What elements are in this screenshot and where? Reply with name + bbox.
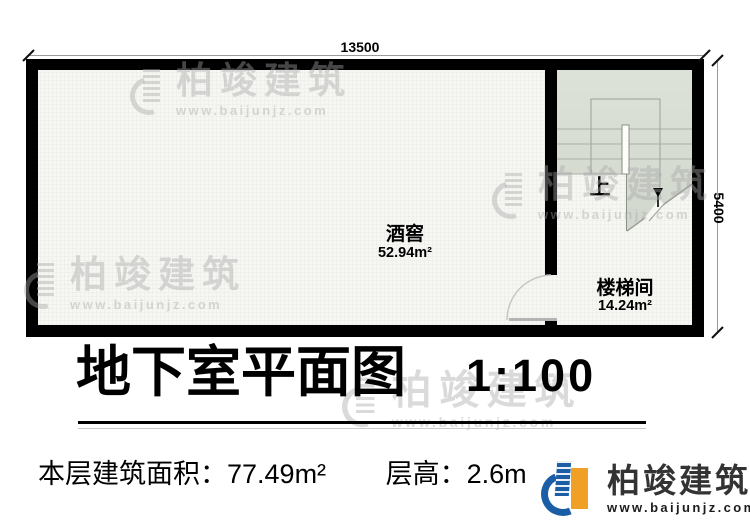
floorplan-sheet: 13500 5400 酒窖 52.94m² 楼梯间 14.24m² 上 柏竣建筑… (0, 0, 750, 530)
title-underline-thin (78, 428, 646, 429)
stair-center-rail (622, 125, 629, 174)
company-name: 柏竣建筑 (607, 464, 750, 497)
drawing-title-row: 地下室平面图 1:100 (76, 338, 596, 407)
logo-building-blue (555, 461, 571, 496)
dimension-label-right: 5400 (711, 192, 727, 223)
drawing-scale: 1:100 (466, 350, 596, 402)
internal-wall (545, 70, 557, 275)
title-underline (78, 421, 646, 424)
room-label-stairwell: 楼梯间 (596, 276, 653, 299)
room-area-stairwell: 14.24m² (598, 298, 652, 314)
floor-info-row: 本层建筑面积：77.49m² 层高：2.6m (38, 452, 527, 491)
company-logo: 柏竣建筑 www.baijunjz.com (540, 457, 750, 521)
floor-area-text: 本层建筑面积：77.49m² (38, 459, 326, 489)
company-logo-icon (540, 457, 602, 521)
floorplan-drawing: 13500 5400 酒窖 52.94m² 楼梯间 14.24m² 上 (0, 0, 750, 530)
floor-height-text: 层高：2.6m (386, 459, 527, 489)
stair-up-label: 上 (590, 176, 611, 199)
dimension-label-top: 13500 (341, 39, 380, 55)
company-url: www.baijunjz.com (607, 500, 750, 515)
logo-building-orange (571, 468, 588, 509)
room-label-wine-cellar: 酒窖 (386, 222, 424, 245)
room-area-wine-cellar: 52.94m² (378, 245, 432, 261)
drawing-title: 地下室平面图 (76, 338, 406, 407)
